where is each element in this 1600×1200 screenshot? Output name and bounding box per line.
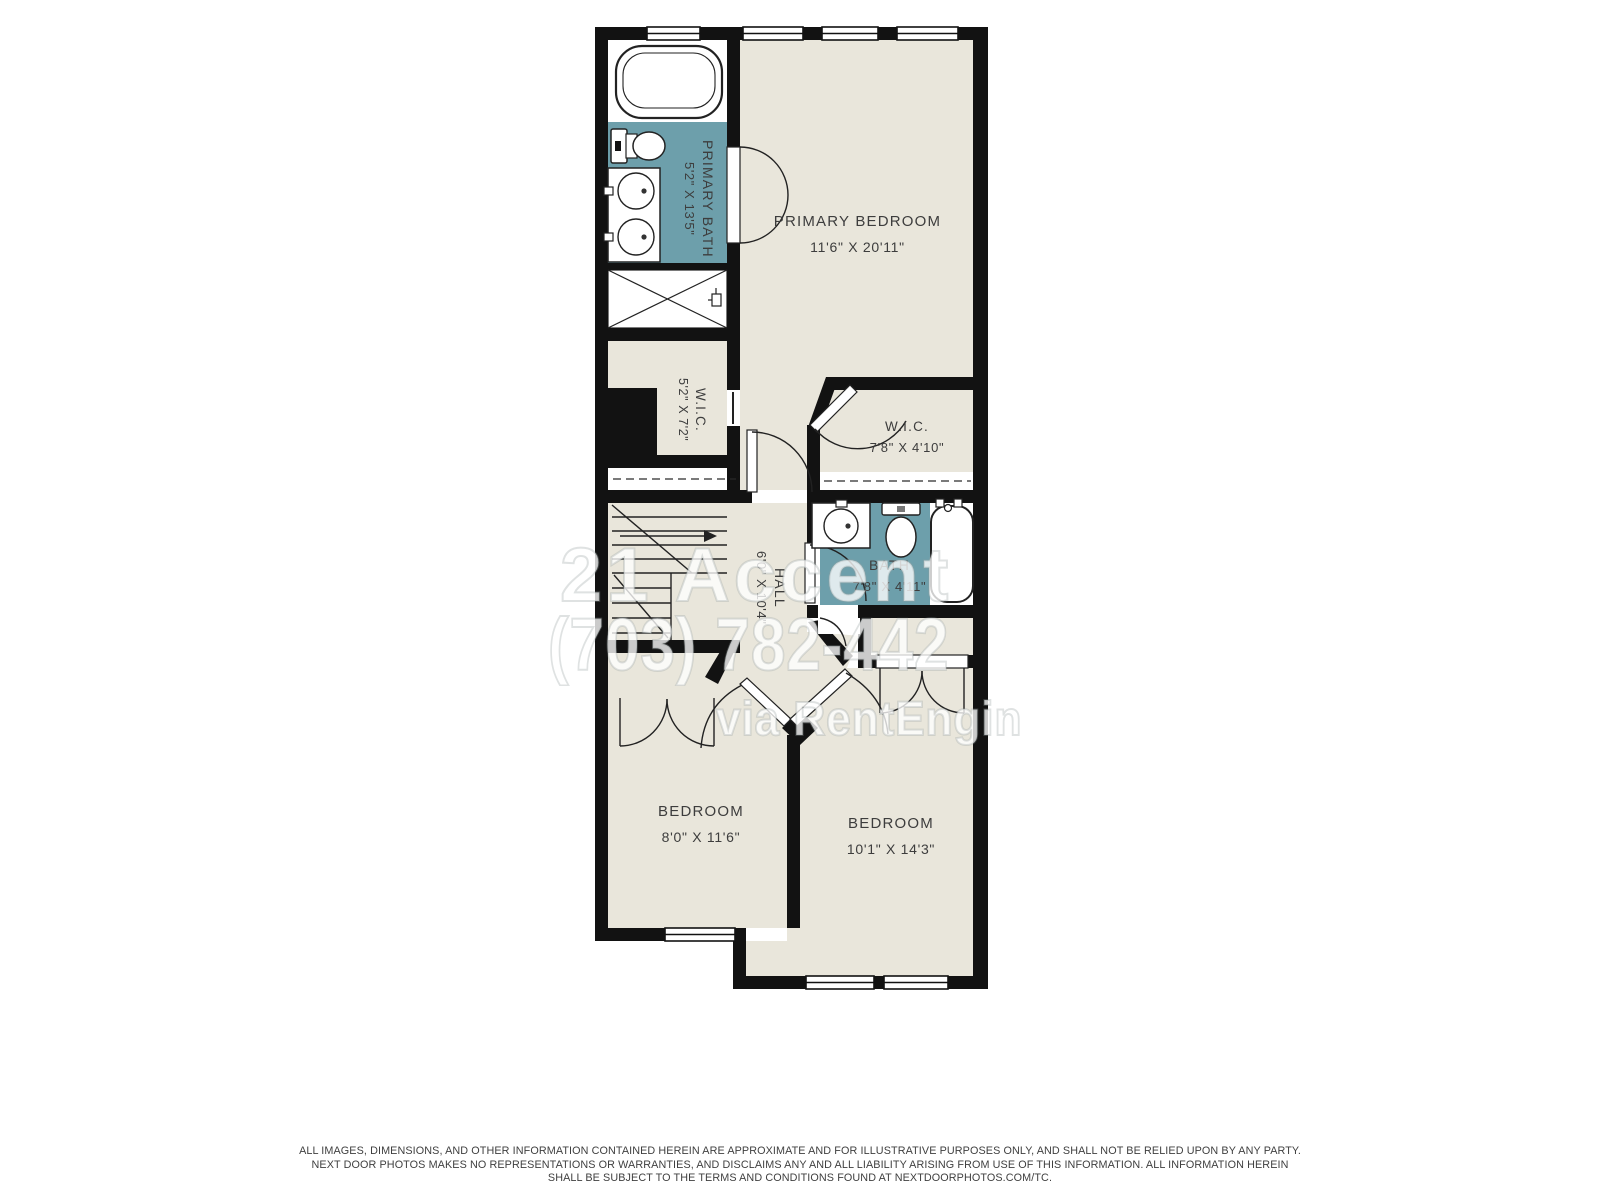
room-dimensions: 5'2" X 13'5" bbox=[682, 133, 697, 265]
room-dimensions: 7'8" X 4'10" bbox=[828, 440, 986, 455]
floor-plan-canvas bbox=[0, 0, 1600, 1200]
room-label-bedroom-right: BEDROOM 10'1" X 14'3" bbox=[792, 815, 990, 857]
room-label-hall: HALL 6'0" X 10'4" bbox=[742, 538, 788, 638]
window-icon bbox=[647, 27, 700, 40]
window-icon bbox=[743, 27, 803, 40]
disclaimer-line-3: SHALL BE SUBJECT TO THE TERMS AND CONDIT… bbox=[0, 1172, 1600, 1186]
room-dimensions: 5'2" X 7'2" bbox=[676, 364, 690, 456]
room-name: BEDROOM bbox=[792, 815, 990, 832]
disclaimer-line-1: ALL IMAGES, DIMENSIONS, AND OTHER INFORM… bbox=[0, 1145, 1600, 1159]
window-icon bbox=[665, 928, 735, 941]
room-dimensions: 6'0" X 10'4" bbox=[754, 538, 769, 638]
room-dimensions: 11'6" X 20'11" bbox=[750, 239, 965, 255]
room-name: BEDROOM bbox=[612, 803, 790, 820]
room-label-primary-bath: PRIMARY BATH 5'2" X 13'5" bbox=[670, 133, 716, 265]
room-name: W.I.C. bbox=[828, 419, 986, 434]
window-icon bbox=[897, 27, 958, 40]
room-dimensions: 7'8" X 4'11" bbox=[822, 579, 957, 594]
room-dimensions: 10'1" X 14'3" bbox=[792, 841, 990, 857]
room-name: PRIMARY BEDROOM bbox=[750, 213, 965, 230]
room-name: PRIMARY BATH bbox=[700, 133, 716, 265]
room-label-bedroom-left: BEDROOM 8'0" X 11'6" bbox=[612, 803, 790, 845]
bathtub-icon bbox=[616, 46, 722, 118]
window-icon bbox=[884, 976, 948, 989]
room-name: BATH bbox=[822, 557, 957, 573]
chase-void bbox=[608, 388, 657, 455]
floor-plan: PRIMARY BATH 5'2" X 13'5" PRIMARY BEDROO… bbox=[0, 0, 1600, 1200]
window-icon bbox=[806, 976, 874, 989]
room-label-wic-right: W.I.C. 7'8" X 4'10" bbox=[828, 419, 986, 455]
room-label-primary-bedroom: PRIMARY BEDROOM 11'6" X 20'11" bbox=[750, 213, 965, 255]
room-label-bath: BATH 7'8" X 4'11" bbox=[822, 557, 957, 594]
sink-icon bbox=[812, 500, 870, 548]
window-icon bbox=[822, 27, 878, 40]
room-dimensions: 8'0" X 11'6" bbox=[612, 829, 790, 845]
double-sink-vanity-icon bbox=[604, 168, 660, 262]
room-label-wic-left: W.I.C. 5'2" X 7'2" bbox=[664, 364, 708, 456]
room-name: W.I.C. bbox=[693, 364, 708, 456]
disclaimer-text: ALL IMAGES, DIMENSIONS, AND OTHER INFORM… bbox=[0, 1145, 1600, 1186]
room-name: HALL bbox=[772, 538, 788, 638]
disclaimer-line-2: NEXT DOOR PHOTOS MAKES NO REPRESENTATION… bbox=[0, 1159, 1600, 1173]
wic-sliding-door-icon bbox=[727, 390, 740, 426]
